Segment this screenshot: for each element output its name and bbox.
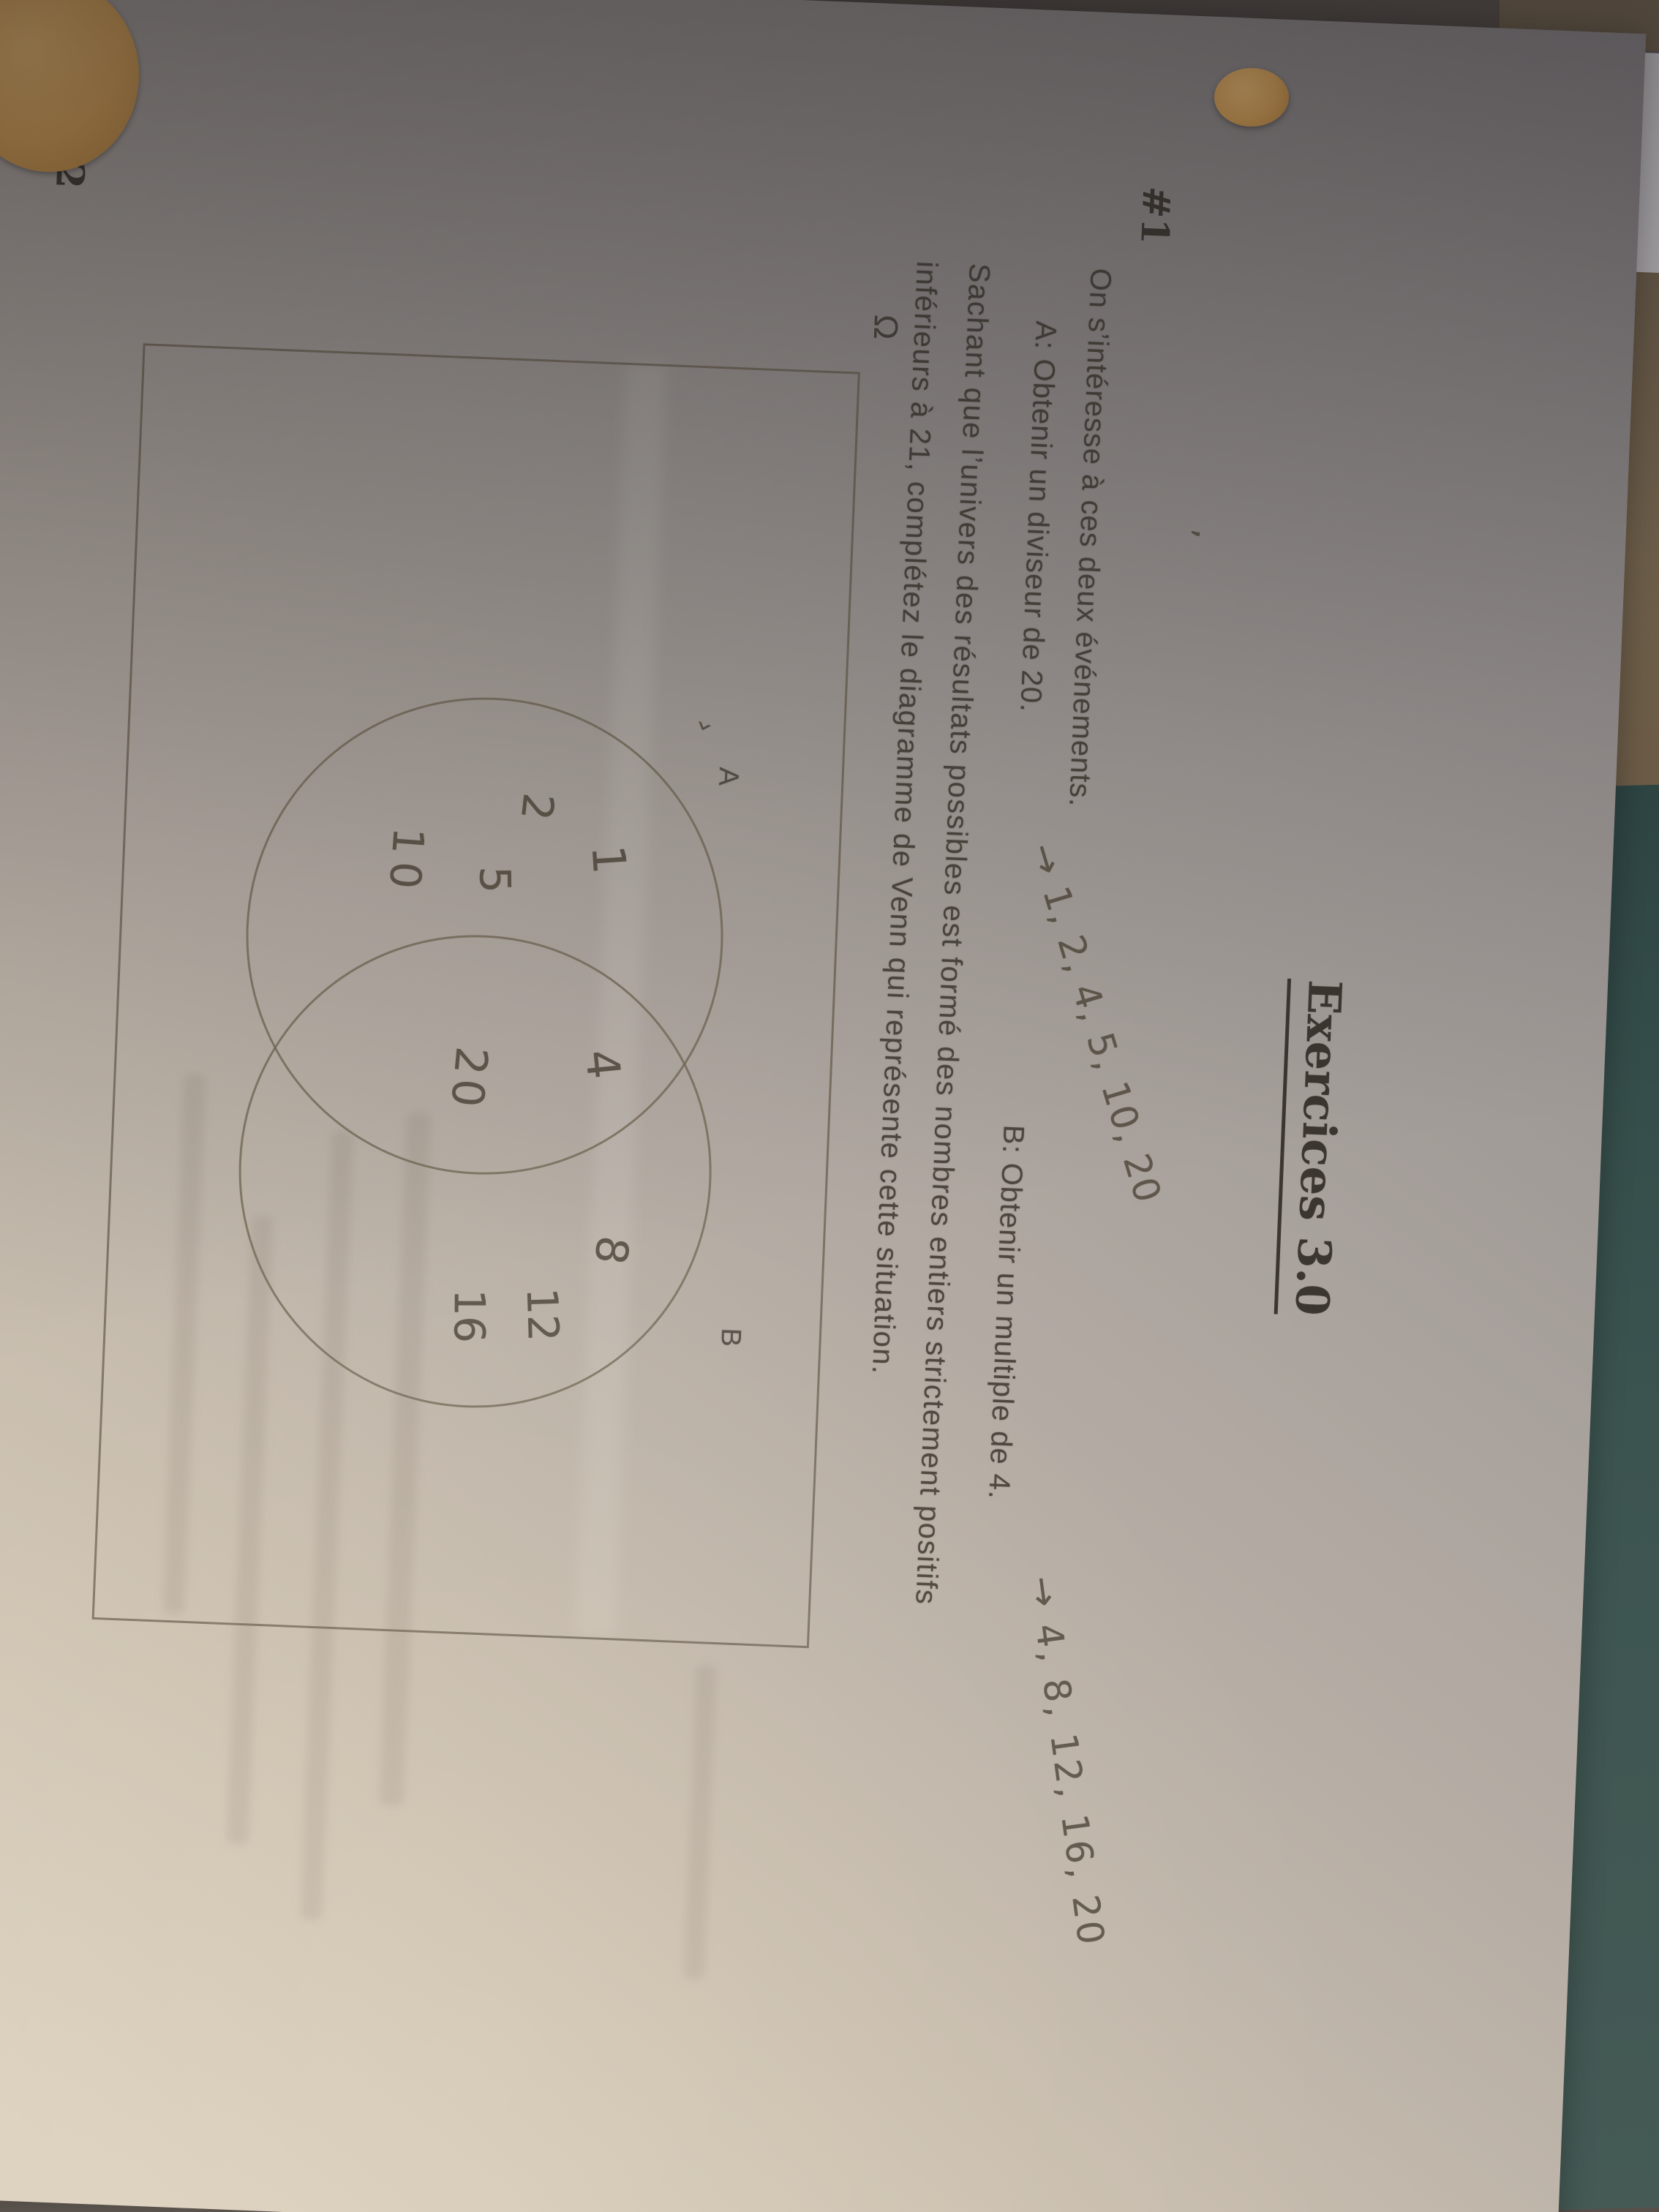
venn-number-a3: 5 — [470, 866, 519, 894]
venn-number-b3: 16 — [444, 1289, 494, 1343]
venn-number-a4: 10 — [379, 826, 434, 898]
event-a-text: A: Obtenir un diviseur de 20. — [1013, 320, 1061, 713]
page-title: Exercices 3.0 — [1274, 979, 1352, 1317]
venn-number-i1: 4 — [575, 1047, 631, 1082]
binder-ring-icon — [1214, 68, 1289, 127]
universe-omega-label: Ω — [866, 314, 906, 341]
exercise1-number: #1 — [1132, 185, 1178, 245]
worksheet-page: Exercices 3.0 #1 , On s’intéresse à ces … — [0, 0, 1646, 2212]
photo-canvas: Exercices 3.0 #1 , On s’intéresse à ces … — [0, 0, 1659, 2212]
venn-number-i2: 20 — [440, 1045, 497, 1113]
exercise1-intro: On s’intéresse à ces deux événements. — [1062, 268, 1117, 808]
handwritten-answer-b: → 4, 8, 12, 16, 20 — [1020, 1573, 1113, 1950]
circle-b-label: B — [714, 1328, 746, 1347]
venn-number-a1: 1 — [582, 843, 636, 876]
handwritten-answer-a: → 1, 2, 4, 5, 10, 20 — [1021, 838, 1169, 1208]
stray-pencil-comma: , — [1187, 528, 1227, 541]
venn-number-b2: 12 — [517, 1287, 568, 1342]
venn-number-a2: 2 — [511, 791, 564, 823]
circle-a-label: A — [712, 767, 744, 786]
event-b-text: B: Obtenir un multiple de 4. — [982, 1124, 1030, 1500]
bleedthrough-smudge — [684, 1665, 717, 1980]
